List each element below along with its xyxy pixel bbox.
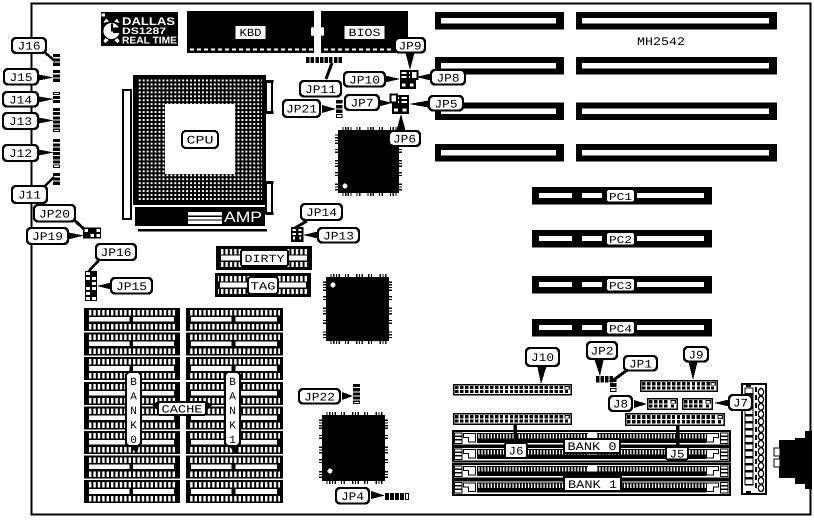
svg-text:PC4: PC4 [609, 324, 632, 336]
svg-text:JP15: JP15 [116, 281, 147, 294]
svg-text:PC3: PC3 [609, 281, 632, 293]
svg-text:J11: J11 [18, 190, 41, 203]
svg-text:JP11: JP11 [305, 84, 336, 97]
svg-text:REAL TIME: REAL TIME [122, 36, 177, 47]
svg-text:B: B [130, 377, 137, 389]
svg-text:JP19: JP19 [32, 231, 63, 244]
svg-text:N: N [130, 406, 137, 418]
svg-text:K: K [130, 421, 137, 433]
svg-text:A: A [130, 392, 137, 404]
svg-text:JP20: JP20 [39, 208, 70, 221]
svg-text:J16: J16 [18, 41, 41, 54]
svg-text:MH2542: MH2542 [637, 36, 685, 49]
svg-text:BIOS: BIOS [349, 28, 381, 40]
svg-text:JP16: JP16 [101, 247, 132, 260]
svg-text:JP6: JP6 [393, 134, 416, 147]
svg-text:JP14: JP14 [306, 207, 337, 220]
svg-text:N: N [229, 406, 236, 418]
svg-text:JP2: JP2 [591, 346, 614, 359]
svg-text:J8: J8 [613, 399, 628, 412]
svg-text:JP1: JP1 [629, 358, 652, 371]
svg-text:JP10: JP10 [349, 74, 380, 87]
svg-text:J5: J5 [670, 448, 685, 461]
svg-text:PC2: PC2 [609, 235, 632, 247]
svg-text:JP8: JP8 [437, 72, 460, 85]
svg-text:JP13: JP13 [323, 230, 354, 243]
svg-text:J6: J6 [509, 446, 524, 459]
svg-text:JP5: JP5 [435, 98, 458, 111]
svg-text:AMP: AMP [224, 209, 262, 226]
svg-text:JP4: JP4 [341, 491, 364, 504]
svg-text:CPU: CPU [187, 135, 214, 148]
svg-text:CACHE: CACHE [162, 405, 203, 417]
svg-text:J12: J12 [9, 148, 32, 161]
svg-text:BANK 0: BANK 0 [568, 441, 617, 454]
svg-text:K: K [229, 421, 236, 433]
svg-text:PC1: PC1 [609, 192, 632, 204]
svg-text:J7: J7 [733, 398, 748, 411]
svg-text:B: B [229, 377, 236, 389]
svg-text:A: A [229, 392, 236, 404]
svg-text:JP9: JP9 [399, 40, 422, 53]
svg-text:JP21: JP21 [286, 104, 317, 117]
svg-text:JP7: JP7 [351, 98, 374, 111]
svg-text:BANK 1: BANK 1 [568, 479, 617, 492]
svg-text:J13: J13 [9, 116, 32, 129]
svg-text:J14: J14 [9, 94, 32, 107]
svg-text:J9: J9 [689, 349, 704, 362]
svg-text:TAG: TAG [251, 282, 276, 294]
svg-text:J10: J10 [531, 352, 554, 365]
svg-text:JP22: JP22 [304, 391, 335, 404]
svg-text:DIRTY: DIRTY [245, 254, 285, 266]
svg-text:J15: J15 [10, 72, 33, 85]
svg-text:KBD: KBD [240, 28, 262, 40]
